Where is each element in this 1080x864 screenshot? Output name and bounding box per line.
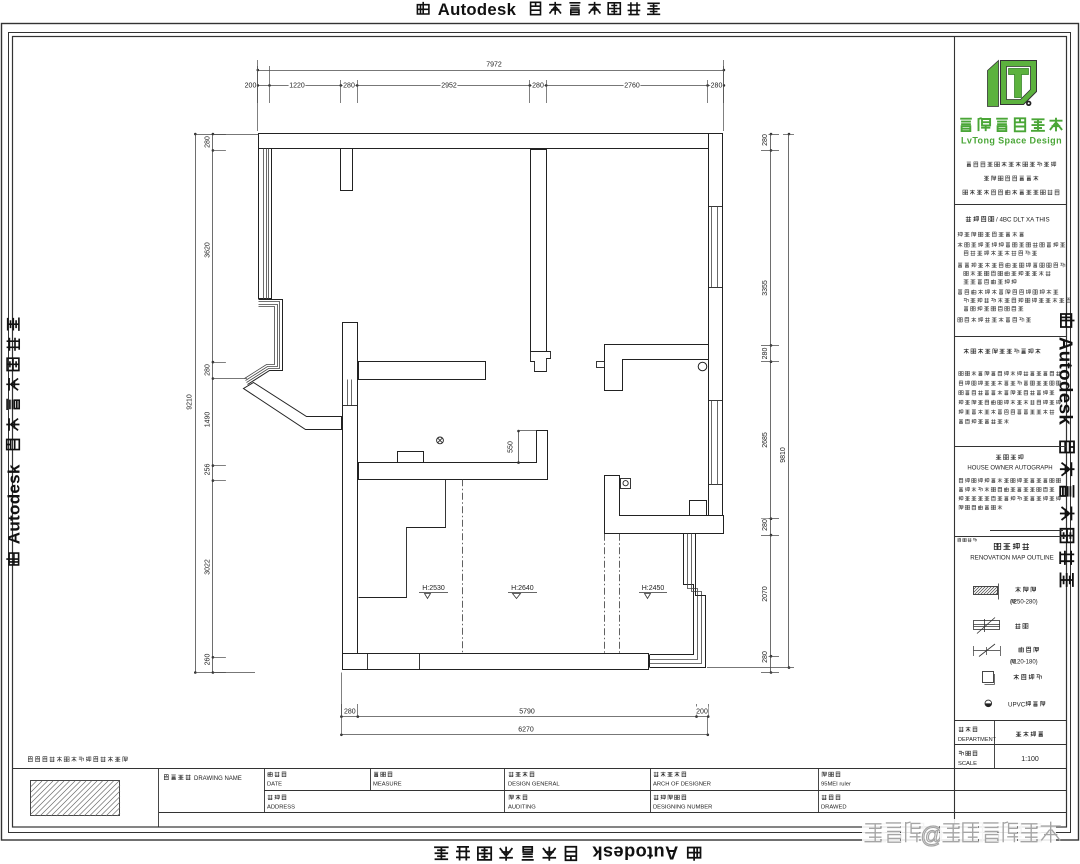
svg-text:2760: 2760 [624,83,640,90]
svg-text:2952: 2952 [441,83,457,90]
svg-text:Autodesk: Autodesk [438,0,517,19]
svg-text:95MEI ruler: 95MEI ruler [821,782,851,788]
svg-text:SCALE: SCALE [958,761,977,767]
svg-text:550: 550 [508,441,515,453]
svg-text:( 120-180): ( 120-180) [1010,660,1038,666]
svg-text:3620: 3620 [205,242,212,258]
svg-text:9810: 9810 [780,447,787,463]
svg-text:1220: 1220 [289,83,305,90]
svg-text:280: 280 [343,83,355,90]
svg-text:ARCH OF DESIGNER: ARCH OF DESIGNER [653,782,711,788]
svg-text:9210: 9210 [187,394,194,410]
svg-text:DATE: DATE [267,782,282,788]
svg-text:DESIGNING NUMBER: DESIGNING NUMBER [653,805,712,811]
svg-text:AUDITING: AUDITING [508,805,536,811]
svg-text:6270: 6270 [518,727,534,734]
svg-text:MEASURE: MEASURE [373,782,402,788]
svg-text:H:2640: H:2640 [511,585,534,592]
svg-text:HOUSE OWNER AUTOGRAPH: HOUSE OWNER AUTOGRAPH [967,466,1052,472]
svg-text:200: 200 [245,83,257,90]
svg-text:( 250-280): ( 250-280) [1010,600,1038,606]
svg-text:200: 200 [696,709,708,716]
svg-text:280: 280 [532,83,544,90]
svg-text:280: 280 [711,83,723,90]
svg-text:280: 280 [762,519,769,531]
svg-text:7972: 7972 [486,62,502,69]
svg-text:2070: 2070 [762,586,769,602]
svg-text:3022: 3022 [205,559,212,575]
svg-text:280: 280 [762,651,769,663]
svg-text:/ 4BC DLT XA THIS: / 4BC DLT XA THIS [996,217,1050,224]
svg-text:DEPARTMENT: DEPARTMENT [958,737,997,743]
svg-text:DRAWING NAME: DRAWING NAME [194,776,242,782]
svg-text:1:100: 1:100 [1021,756,1039,763]
svg-text:Autodesk: Autodesk [592,842,679,863]
svg-text:280: 280 [762,348,769,360]
svg-text:2685: 2685 [762,432,769,448]
svg-text:1490: 1490 [205,412,212,428]
svg-text:LvTong Space Design: LvTong Space Design [961,136,1062,146]
svg-text:5790: 5790 [519,709,535,716]
svg-text:H:2530: H:2530 [422,585,445,592]
svg-text:280: 280 [344,709,356,716]
svg-text:RENOVATION MAP OUTLINE: RENOVATION MAP OUTLINE [970,555,1054,562]
svg-text:DRAWED: DRAWED [821,805,847,811]
svg-text:280: 280 [762,134,769,146]
svg-text:Autodesk: Autodesk [5,464,24,544]
svg-text:280: 280 [205,364,212,376]
svg-text:280: 280 [205,136,212,148]
svg-text:ADDRESS: ADDRESS [267,805,295,811]
svg-text:DESIGN GENERAL: DESIGN GENERAL [508,782,560,788]
svg-text:260: 260 [205,654,212,666]
svg-text:256: 256 [205,464,212,476]
svg-text:3355: 3355 [762,280,769,296]
svg-text:H:2450: H:2450 [642,585,665,592]
svg-text:UPVC: UPVC [1008,702,1026,709]
